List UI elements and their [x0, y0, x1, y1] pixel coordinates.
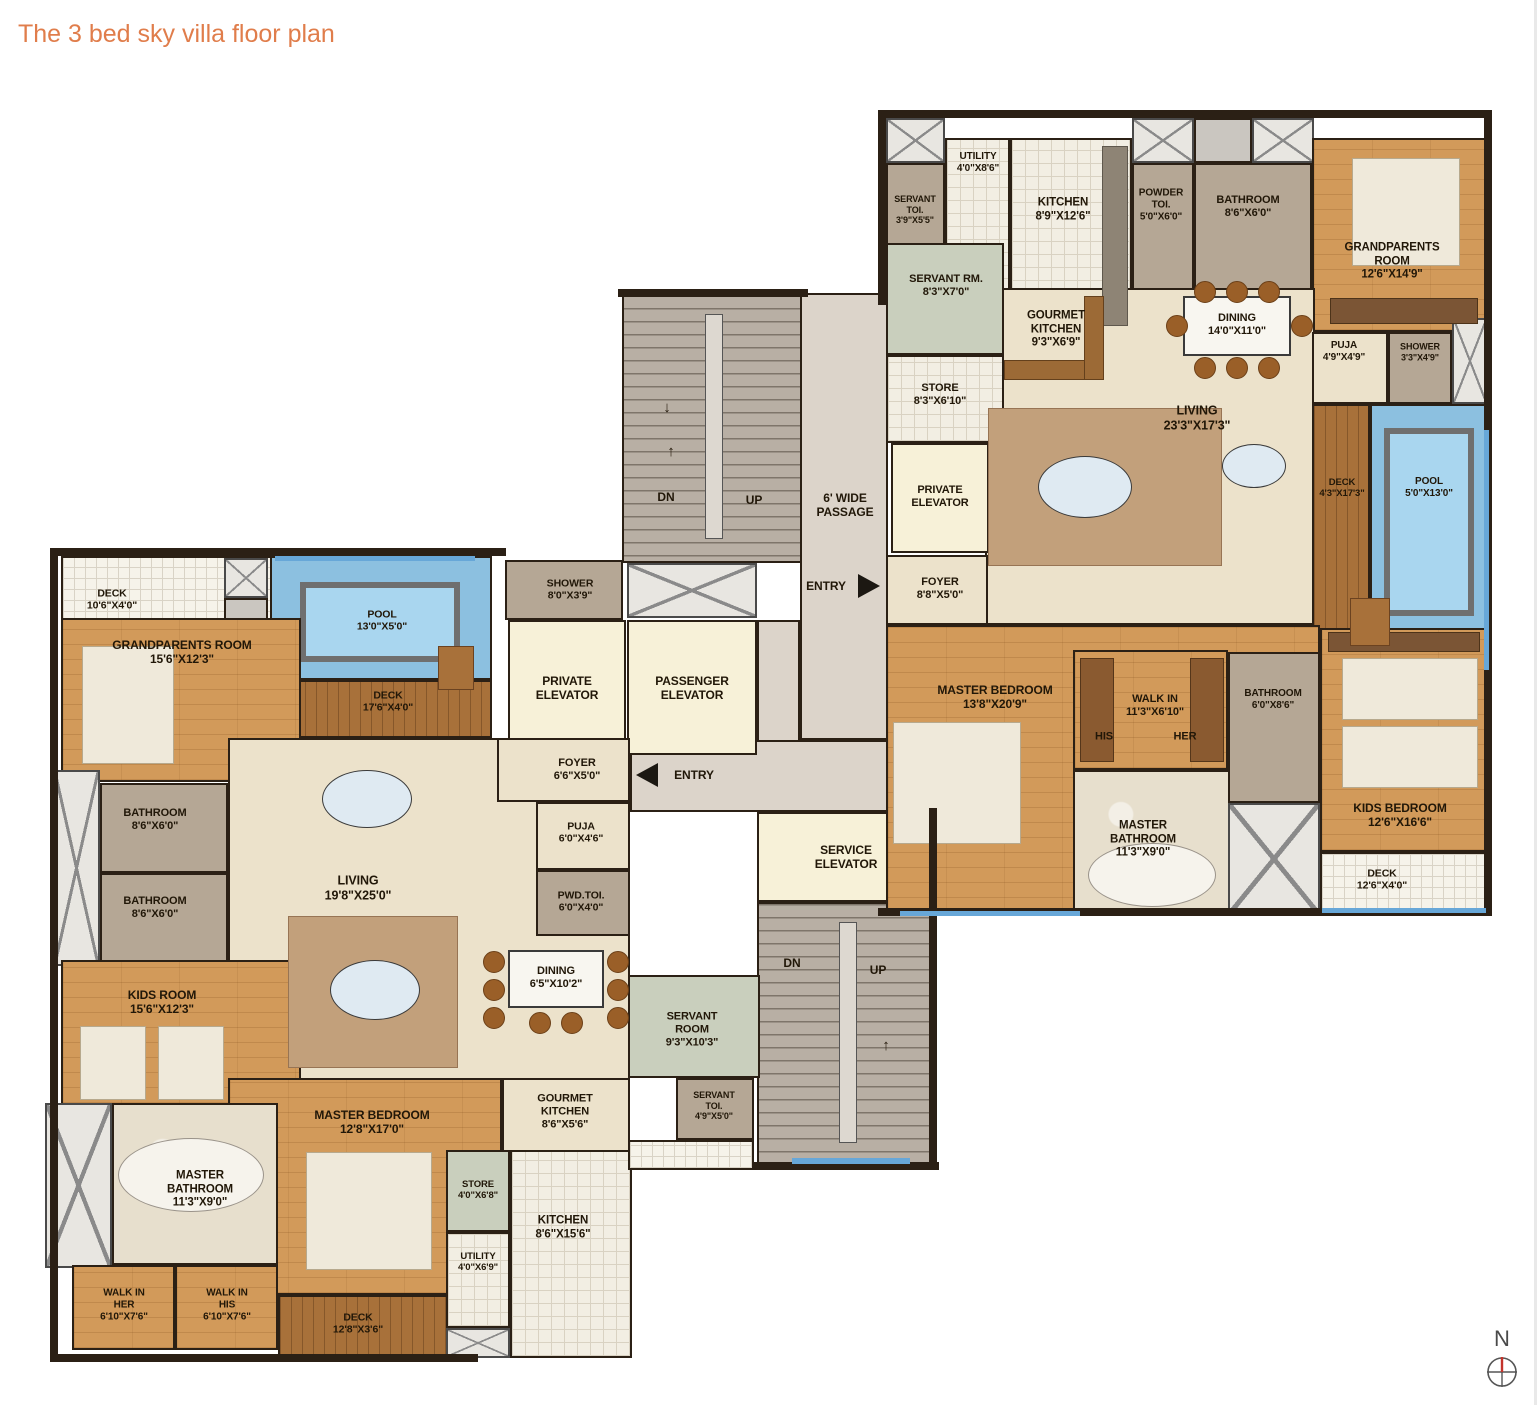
furniture-23 [561, 1012, 583, 1034]
furniture-35 [1190, 658, 1224, 762]
shower-right-label: SHOWER3'3"X4'9" [1400, 341, 1440, 362]
deck-bottom-right-label: DECK12'6"X4'0" [1357, 868, 1407, 893]
utility-right-label: UTILITY4'0"X8'6" [957, 151, 999, 175]
walkin-her-left-label: WALK INHER6'10"X7'6" [100, 1287, 148, 1322]
living-right-label-label: LIVING23'3"X17'3" [1164, 403, 1231, 433]
furniture-28 [1226, 357, 1248, 379]
svg-text:N: N [1494, 1326, 1510, 1351]
gourmet-kitchen-left-label-label: GOURMETKITCHEN8'6"X5'6" [537, 1093, 593, 1132]
entry-left-arrow [636, 763, 658, 787]
utility-left [446, 1232, 510, 1328]
deck-strip-left [628, 1140, 754, 1170]
furniture-6 [1342, 658, 1478, 720]
passage-label-label: 6' WIDEPASSAGE [816, 491, 873, 519]
servant-rm-right [886, 243, 1004, 355]
deck-top-left-label: DECK10'6"X4'0" [87, 588, 137, 613]
pool-right-inner-label: POOL5'0"X13'0" [1405, 476, 1453, 500]
up-upper-label-label: UP [746, 493, 762, 507]
right-top-hatch-2 [1132, 118, 1194, 163]
stairs-lower [757, 902, 935, 1166]
master-bedroom-left-label: MASTER BEDROOM12'8"X17'0" [314, 1108, 429, 1136]
furniture-13 [330, 960, 420, 1020]
pool-left-inner-label: POOL13'0"X5'0" [357, 609, 407, 634]
furniture-39 [438, 646, 474, 690]
gourmet-kitchen-right-label-label: GOURMETKITCHEN9'3"X6'9" [1027, 310, 1085, 351]
kitchen-left [510, 1150, 632, 1358]
furniture-36 [1102, 146, 1128, 326]
furniture-12 [322, 770, 412, 828]
foyer-right-label: FOYER8'8"X5'0" [917, 576, 964, 602]
servant-room-left-label: SERVANTROOM9'3"X10'3" [666, 1011, 719, 1050]
furniture-38 [1084, 296, 1104, 380]
furniture-34 [1080, 658, 1114, 762]
shaft-right [1228, 803, 1320, 915]
closet-hatch-left [224, 558, 268, 598]
passenger-elevator-label: PASSENGERELEVATOR [655, 673, 729, 701]
dn-lower-label-label: DN [783, 956, 800, 970]
bathroom-right-top [1194, 163, 1312, 290]
passage-mid [757, 620, 800, 742]
wall-segment-7 [618, 289, 808, 297]
utility-left-label: UTILITY4'0"X6'9" [458, 1251, 498, 1273]
puja-left-label: PUJA6'0"X4'6" [559, 821, 603, 846]
powder-toi-right [1132, 163, 1194, 300]
furniture-40 [1350, 598, 1390, 646]
powder-toi-right-label: POWDERTOI.5'0"X6'0" [1139, 187, 1183, 222]
wall-segment-10 [878, 110, 886, 305]
furniture-24 [1194, 281, 1216, 303]
elevator-lobby-hatch [627, 563, 757, 618]
servant-toi-right-label: SERVANTTOI.3'9"X5'5" [894, 194, 935, 226]
entry-right-label-label: ENTRY [806, 579, 846, 593]
dn-upper-label-label: DN [657, 490, 674, 504]
north-compass-icon: N [1472, 1324, 1536, 1398]
window-sill-2 [900, 911, 1080, 916]
furniture-18 [483, 1007, 505, 1029]
window-sill-4 [792, 1158, 910, 1164]
pool-right-inner [1384, 428, 1474, 616]
bathroom-left-1-label: BATHROOM8'6"X6'0" [123, 807, 186, 833]
furniture-31 [1291, 315, 1313, 337]
deck-bottom-left-label: DECK12'8"X3'6" [333, 1312, 383, 1337]
walkin-her-right-label-label: HER [1174, 731, 1197, 744]
kids-room-left-label: KIDS ROOM15'6"X12'3" [128, 988, 196, 1016]
furniture-21 [607, 1007, 629, 1029]
window-sill-0 [275, 556, 475, 561]
grandparents-room-left-label: GRANDPARENTS ROOM15'6"X12'3" [112, 638, 251, 666]
grandparents-room-right-label: GRANDPARENTSROOM12'6"X14'9" [1344, 242, 1439, 283]
furniture-7 [1342, 726, 1478, 788]
furniture-3 [306, 1152, 432, 1270]
pwd-toi-left-label: PWD.TOI.6'0"X4'0" [558, 890, 605, 915]
wall-segment-2 [50, 1354, 478, 1362]
furniture-4 [893, 722, 1021, 844]
deck-mid-left-label: DECK17'6"X4'0" [363, 690, 413, 715]
furniture-16 [483, 951, 505, 973]
furniture-14 [1038, 456, 1132, 518]
kitchen-left-label: KITCHEN8'6"X15'6" [535, 1214, 590, 1241]
kitchen-right-label: KITCHEN8'9"X12'6" [1035, 196, 1090, 223]
dining-table-left-label: DINING6'5"X10'2" [530, 965, 583, 991]
right-top-hatch-3 [1252, 118, 1314, 163]
living-left-label-label: LIVING19'8"X25'0" [325, 873, 392, 903]
bathroom-right-mid-label: BATHROOM6'0"X8'6" [1244, 688, 1301, 712]
arrow-up-lower-label: ↑ [882, 1037, 889, 1055]
service-elevator-label: SERVICEELEVATOR [815, 843, 878, 871]
deck-right-label: DECK4'3"X17'3" [1319, 477, 1364, 499]
furniture-19 [607, 951, 629, 973]
walkin-right-label: WALK IN11'3"X6'10" [1126, 693, 1184, 719]
servant-toi-left-label: SERVANTTOI.4'9"X5'0" [693, 1090, 734, 1122]
furniture-29 [1258, 357, 1280, 379]
furniture-15 [1222, 444, 1286, 488]
entry-left-label-label: ENTRY [674, 768, 714, 782]
bathroom-left-2-label: BATHROOM8'6"X6'0" [123, 895, 186, 921]
master-bedroom-right-label: MASTER BEDROOM13'8"X20'9" [937, 683, 1052, 711]
foyer-left-label: FOYER6'6"X5'0" [554, 757, 601, 783]
furniture-26 [1258, 281, 1280, 303]
bathroom-right-top-label: BATHROOM8'6"X6'0" [1216, 194, 1279, 220]
entry-right-arrow [858, 574, 880, 598]
store-right-label: STORE8'3"X6'10" [914, 382, 967, 408]
walkin-his-left-label: WALK INHIS6'10"X7'6" [203, 1287, 251, 1322]
stairs-upper [622, 293, 802, 563]
furniture-20 [607, 979, 629, 1001]
window-sill-3 [1484, 430, 1489, 670]
walkin-his-right-label-label: HIS [1095, 731, 1113, 744]
master-bathroom-left-label: MASTERBATHROOM11'3"X9'0" [167, 1170, 233, 1211]
right-top-hatch-1 [886, 118, 945, 163]
window-sill-1 [1322, 908, 1486, 913]
wall-segment-1 [50, 548, 58, 1362]
arrow-down-upper-label: ↓ [663, 399, 670, 417]
closet-col-left [53, 770, 100, 966]
up-lower-label-label: UP [870, 963, 886, 977]
wall-segment-8 [929, 808, 937, 1168]
servant-rm-right-label: SERVANT RM.8'3"X7'0" [909, 273, 983, 299]
right-top-panel [1194, 118, 1252, 163]
furniture-2 [158, 1026, 224, 1100]
private-elevator-right-label: PRIVATEELEVATOR [911, 484, 968, 510]
wall-segment-0 [50, 548, 506, 556]
private-elevator-left-label: PRIVATEELEVATOR [536, 673, 599, 701]
furniture-32 [1330, 298, 1478, 324]
bathroom-right-mid [1228, 652, 1320, 803]
closet-right-shower [1452, 318, 1488, 404]
page-title: The 3 bed sky villa floor plan [18, 20, 335, 49]
furniture-27 [1194, 357, 1216, 379]
furniture-22 [529, 1012, 551, 1034]
kids-bedroom-right-label: KIDS BEDROOM12'6"X16'6" [1353, 801, 1446, 829]
store-left-label: STORE4'0"X6'8" [458, 1179, 498, 1201]
furniture-30 [1166, 315, 1188, 337]
puja-right-label: PUJA4'9"X4'9" [1323, 340, 1365, 364]
furniture-17 [483, 979, 505, 1001]
floor-plan-canvas: The 3 bed sky villa floor plan PRIVATEEL… [0, 0, 1537, 1405]
master-bathroom-right-label: MASTERBATHROOM11'3"X9'0" [1110, 820, 1176, 861]
wall-segment-3 [878, 110, 1492, 118]
arrow-up-upper-label: ↑ [667, 443, 674, 461]
shower-left-label: SHOWER8'0"X3'9" [547, 578, 594, 603]
dining-table-right-label: DINING14'0"X11'0" [1208, 312, 1266, 338]
furniture-1 [80, 1026, 146, 1100]
furniture-25 [1226, 281, 1248, 303]
